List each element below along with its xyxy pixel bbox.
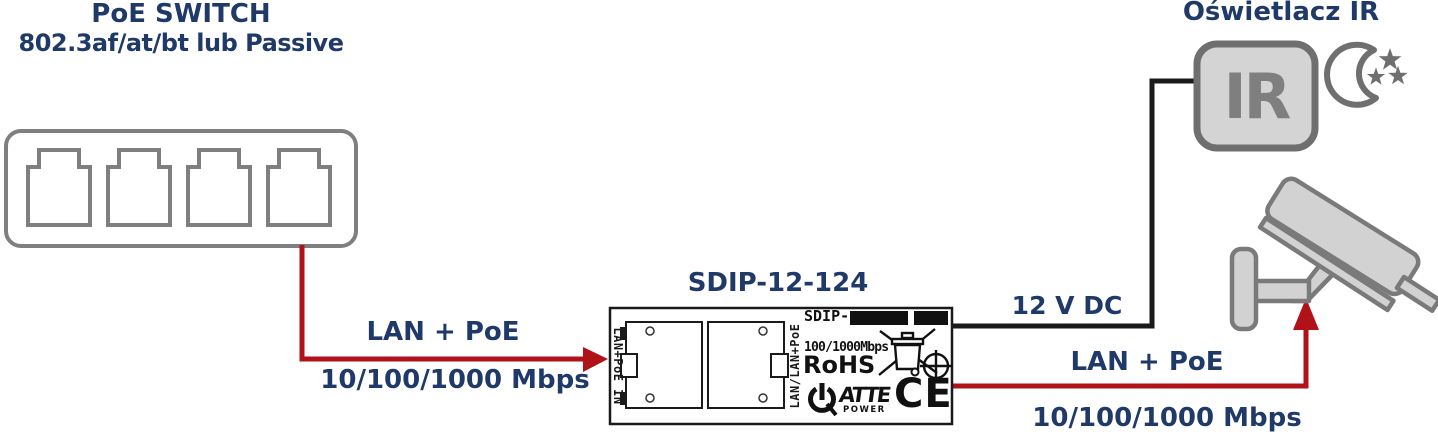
poe-switch-title-line2: 802.3af/at/bt lub Passive xyxy=(0,30,362,58)
converter-title: SDIP-12-124 xyxy=(608,269,948,299)
brand-logo-subtext: POWER xyxy=(843,406,886,415)
link-label-lan-poe-right: LAN + PoE xyxy=(1022,348,1272,378)
camera-wall-plate xyxy=(1232,249,1256,329)
poe-switch-title: PoE SWITCH 802.3af/at/bt lub Passive xyxy=(0,0,362,57)
black-line-converter-to-ir xyxy=(952,81,1199,326)
poe-switch-title-line1: PoE SWITCH xyxy=(0,0,362,30)
link-label-speed-right: 10/100/1000 Mbps xyxy=(1017,404,1317,434)
rj45-port-icon xyxy=(108,150,170,225)
rj45-port-icon xyxy=(188,150,250,225)
red-arrow-switch-to-converter xyxy=(302,245,608,372)
ir-illuminator-title: Oświetlacz IR xyxy=(1146,0,1416,28)
link-label-speed-left: 10/100/1000 Mbps xyxy=(305,366,605,396)
link-label-lan-poe-left: LAN + PoE xyxy=(318,318,568,348)
camera-arm xyxy=(1253,281,1309,301)
diagram-canvas: PoE SWITCH 802.3af/at/bt lub Passive SDI… xyxy=(0,0,1438,435)
jack-notch xyxy=(771,354,788,377)
brand-logo-text: ATTE xyxy=(838,385,891,406)
moon-and-stars-icon xyxy=(1327,45,1408,105)
camera-lens-hood xyxy=(1397,277,1438,311)
rohs-mark: RoHS xyxy=(803,353,875,377)
converter-port-out-label: LAN/LAN+PoE xyxy=(788,311,802,421)
model-redaction-bar xyxy=(914,311,948,325)
cctv-camera-icon xyxy=(1232,175,1438,329)
model-redaction-bar xyxy=(850,311,908,325)
poe-switch-icon xyxy=(6,131,356,246)
rj45-port-icon xyxy=(28,150,90,225)
ce-mark: CE xyxy=(894,374,953,414)
ir-box-text: IR xyxy=(1197,44,1315,148)
converter-model-prefix: SDIP- xyxy=(804,309,849,324)
link-label-12vdc: 12 V DC xyxy=(967,292,1167,321)
converter-port-in-label: LAN+PoE IN xyxy=(611,306,625,426)
rj45-port-icon xyxy=(268,150,330,225)
